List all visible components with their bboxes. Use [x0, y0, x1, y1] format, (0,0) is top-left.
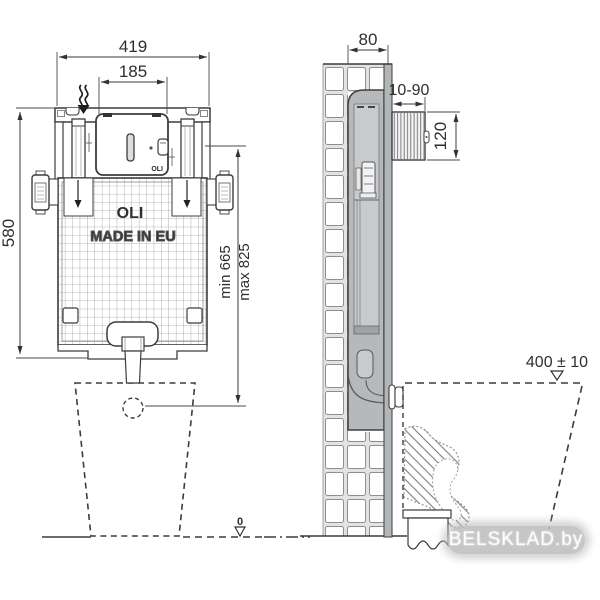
panel-logo: OLI: [151, 166, 163, 173]
floor-datum-icon: 0: [235, 516, 245, 536]
tank-body: OLI MADE IN EU: [58, 178, 207, 345]
dim-overall-width-label: 419: [119, 37, 147, 56]
front-view: OLI MADE IN EU: [0, 37, 310, 537]
flush-pipe-connector: [389, 385, 403, 409]
wall-bracket-left: [32, 171, 58, 214]
floor-datum-label: 0: [237, 516, 243, 528]
dim-tank-height-label: 580: [0, 219, 18, 247]
floor-line-front: 0: [42, 516, 310, 537]
dim-tank-depth-label: 80: [359, 30, 378, 49]
rim-datum-icon: [551, 371, 563, 380]
watermark-text: BELSKLAD.by: [449, 529, 584, 551]
dim-outlet-min-label: min 665: [217, 245, 234, 298]
watermark: BELSKLAD.by: [447, 526, 585, 554]
flush-plate-housing: [392, 112, 429, 160]
dim-rim-height-label: 400 ± 10: [526, 354, 588, 371]
toilet-bowl-outline-side: [403, 383, 582, 549]
dim-panel-width-label: 185: [119, 62, 147, 81]
wall-bracket-right: [207, 171, 233, 214]
finished-wall-layer: [384, 64, 392, 537]
cistern-installation-drawing: OLI MADE IN EU: [0, 0, 600, 600]
side-view: 80 10-90 120 400 ± 10: [300, 30, 588, 549]
drain-outlet: [403, 510, 451, 549]
tank-origin-label: MADE IN EU: [90, 229, 175, 245]
flush-slot: [127, 134, 134, 161]
inspection-panel: OLI: [86, 113, 175, 175]
tank-logo: OLI: [117, 205, 144, 222]
rim-height-datum: 400 ± 10: [526, 354, 588, 380]
technical-drawing-page: OLI MADE IN EU: [0, 0, 600, 600]
dim-plate-height-label: 120: [431, 122, 450, 150]
dim-outlet-max-label: max 825: [236, 243, 253, 301]
dim-plate-depth-label: 10-90: [389, 82, 430, 99]
flush-pipe-inlet-circle: [123, 398, 143, 418]
